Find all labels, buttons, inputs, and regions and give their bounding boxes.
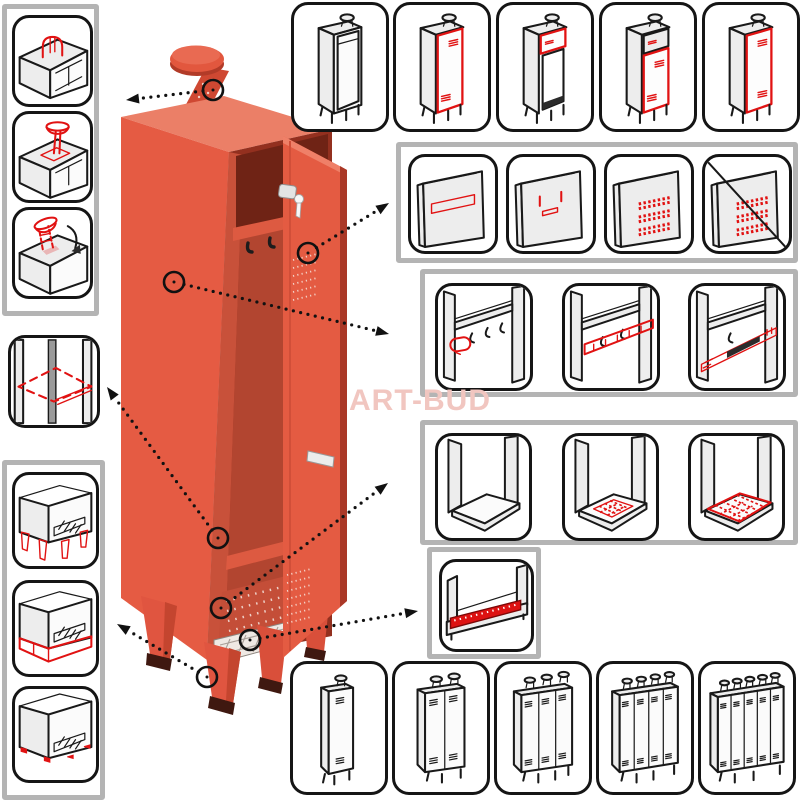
open-door [278, 136, 347, 658]
thumb-5-column[interactable] [698, 661, 796, 795]
thumb-hatch-plus-door[interactable] [599, 2, 697, 132]
bottom-rail-panel [427, 547, 541, 659]
thumb-3-column[interactable] [494, 661, 592, 795]
thumb-plinth-base[interactable] [12, 580, 99, 677]
thumb-4-column[interactable] [596, 661, 694, 795]
thumb-no-perforation[interactable] [702, 154, 792, 254]
base-options-panel [2, 460, 105, 800]
door-features-panel [396, 142, 798, 263]
roof-vent-options-panel [2, 4, 99, 316]
thumb-1-column[interactable] [290, 661, 388, 795]
locker-illustration [121, 46, 347, 716]
thumb-full-door-alt[interactable] [702, 2, 800, 132]
thumb-small-wire-mat[interactable] [562, 433, 659, 541]
thumb-top-hatch-door[interactable] [496, 2, 594, 132]
hanging-options-panel [420, 269, 798, 397]
thumb-name-plate[interactable] [408, 154, 498, 254]
thumb-large-wire-mat[interactable] [688, 433, 785, 541]
thumb-full-door[interactable] [393, 2, 491, 132]
thumb-2-column[interactable] [392, 661, 490, 795]
floor-options-panel [420, 420, 798, 545]
thumb-extra-shelf[interactable] [8, 335, 100, 428]
thumb-hanging-rail[interactable] [562, 283, 660, 391]
thumb-telescopic-rail[interactable] [688, 283, 786, 391]
thumb-vent-chimney-tilted[interactable] [12, 207, 93, 299]
thumb-perforation[interactable] [604, 154, 694, 254]
thumb-floor-glides[interactable] [12, 686, 99, 783]
thumb-tapered-feet[interactable] [12, 472, 99, 569]
thumb-vent-chimney[interactable] [12, 111, 93, 203]
thumb-no-door[interactable] [291, 2, 389, 132]
thumb-extra-hook[interactable] [435, 283, 533, 391]
thumb-bottom-front-rail[interactable] [439, 559, 534, 652]
thumb-plain-bottom[interactable] [435, 433, 532, 541]
thumb-label-slots[interactable] [506, 154, 596, 254]
thumb-vent-cap[interactable] [12, 15, 93, 107]
door-lock-icon [278, 184, 297, 199]
